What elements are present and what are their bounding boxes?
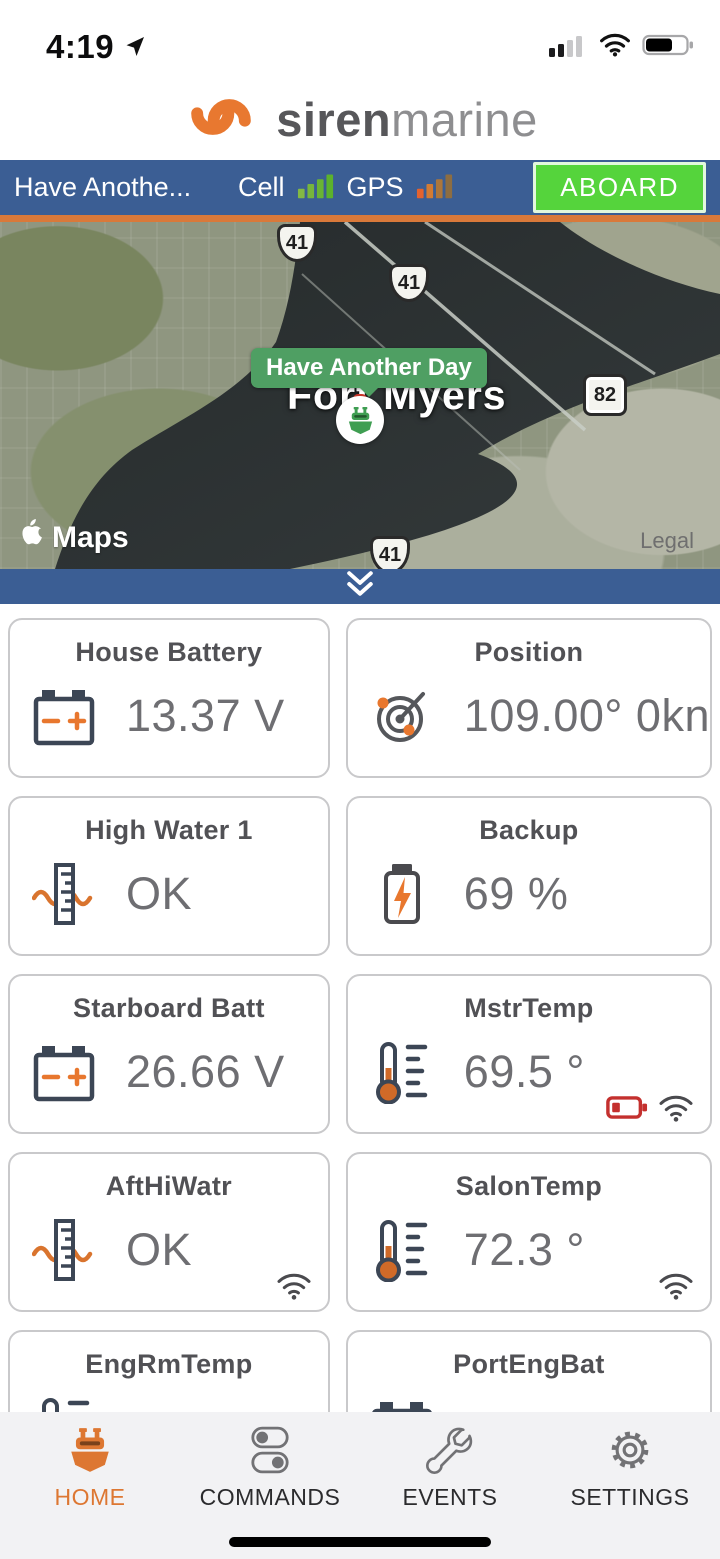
sensor-card[interactable]: Starboard Batt 26.66 V — [8, 974, 330, 1134]
apple-logo-icon — [20, 519, 45, 556]
gps-icon — [370, 684, 434, 748]
wrench-icon — [425, 1425, 475, 1475]
map-expand-bar[interactable] — [0, 569, 720, 604]
sensor-badges — [276, 1270, 312, 1300]
sensor-card[interactable]: House Battery 13.37 V — [8, 618, 330, 778]
thermometer-icon — [370, 1040, 434, 1104]
cell-label: Cell — [238, 172, 285, 203]
brand-name: sirenmarine — [276, 92, 538, 147]
sensor-card[interactable]: High Water 1 OK — [8, 796, 330, 956]
clock: 4:19 — [46, 28, 114, 66]
sensor-value: 13.37 V — [126, 690, 285, 742]
device-bar: Have Anothe... Cell GPS — [0, 160, 720, 222]
maps-attribution[interactable]: Maps — [20, 519, 129, 556]
boat-icon — [345, 405, 376, 436]
sensor-name: EngRmTemp — [10, 1349, 328, 1380]
sensor-name: Position — [348, 637, 710, 668]
sensor-badges — [658, 1270, 694, 1300]
wifi-icon — [599, 33, 631, 62]
sensor-value: 69 % — [464, 868, 569, 920]
sensor-name: MstrTemp — [348, 993, 710, 1024]
thermometer-icon — [370, 1218, 434, 1282]
gps-signal-bars-icon — [416, 171, 454, 204]
device-name[interactable]: Have Anothe... — [14, 172, 238, 203]
map-view[interactable]: 41 41 41 82 Fort Myers Have Another Day … — [0, 222, 720, 569]
sensor-name: House Battery — [10, 637, 328, 668]
wireless-icon — [658, 1270, 694, 1300]
nav-item-settings[interactable]: SETTINGS — [540, 1425, 720, 1559]
backup-icon — [370, 862, 434, 926]
sensor-card[interactable]: AftHiWatr OK — [8, 1152, 330, 1312]
water-level-icon — [32, 862, 96, 926]
route-shield-82: 82 — [583, 374, 627, 416]
nav-item-home[interactable]: HOME — [0, 1425, 180, 1559]
app-screen: 4:19 — [0, 0, 720, 1559]
sensor-value: 109.00° 0kn — [464, 690, 710, 742]
cell-signal-bars-icon — [297, 171, 335, 204]
sensor-name: High Water 1 — [10, 815, 328, 846]
chevron-double-down-icon — [344, 571, 376, 602]
tab-bar: HOME COMMANDS EVENTS SETTINGS — [0, 1412, 720, 1559]
vessel-marker[interactable] — [336, 396, 384, 444]
vessel-callout[interactable]: Have Another Day — [251, 348, 487, 388]
route-shield-41: 41 — [370, 536, 410, 569]
home-indicator[interactable] — [229, 1537, 491, 1547]
sensor-name: SalonTemp — [348, 1171, 710, 1202]
legal-link[interactable]: Legal — [640, 528, 694, 554]
sensor-value: OK — [126, 868, 192, 920]
sirenmarine-logo-icon — [182, 84, 260, 155]
sensor-badges — [606, 1092, 694, 1122]
sensor-value: OK — [126, 1224, 192, 1276]
gear-icon — [605, 1425, 655, 1475]
sensor-value: 72.3 ° — [464, 1224, 585, 1276]
maps-logo-text: Maps — [52, 521, 129, 555]
low-battery-icon — [606, 1094, 648, 1121]
toggles-icon — [245, 1425, 295, 1475]
wireless-icon — [276, 1270, 312, 1300]
sensor-card[interactable]: Position 109.00° 0kn — [346, 618, 712, 778]
sensor-value: 26.66 V — [126, 1046, 285, 1098]
nav-label: HOME — [55, 1484, 126, 1511]
boat-icon — [65, 1425, 115, 1475]
status-bar: 4:19 — [0, 0, 720, 84]
sensor-name: Starboard Batt — [10, 993, 328, 1024]
sensor-name: Backup — [348, 815, 710, 846]
wireless-icon — [658, 1092, 694, 1122]
cellular-signal-icon — [548, 33, 588, 62]
nav-label: SETTINGS — [570, 1484, 689, 1511]
sensor-name: AftHiWatr — [10, 1171, 328, 1202]
nav-label: EVENTS — [402, 1484, 497, 1511]
aboard-button[interactable]: ABOARD — [533, 162, 706, 213]
battery-status-icon — [642, 33, 694, 62]
nav-label: COMMANDS — [200, 1484, 341, 1511]
brand-name-bold: siren — [276, 93, 391, 146]
sensor-value: 69.5 ° — [464, 1046, 585, 1098]
water-level-icon — [32, 1218, 96, 1282]
battery-icon — [32, 1040, 96, 1104]
sensor-card[interactable]: Backup 69 % — [346, 796, 712, 956]
gps-label: GPS — [347, 172, 404, 203]
battery-icon — [32, 684, 96, 748]
sensor-card[interactable]: MstrTemp 69.5 ° — [346, 974, 712, 1134]
brand-header: sirenmarine — [0, 84, 720, 160]
location-arrow-icon — [123, 35, 147, 59]
sensor-name: PortEngBat — [348, 1349, 710, 1380]
sensor-card[interactable]: SalonTemp 72.3 ° — [346, 1152, 712, 1312]
brand-name-light: marine — [391, 93, 538, 146]
